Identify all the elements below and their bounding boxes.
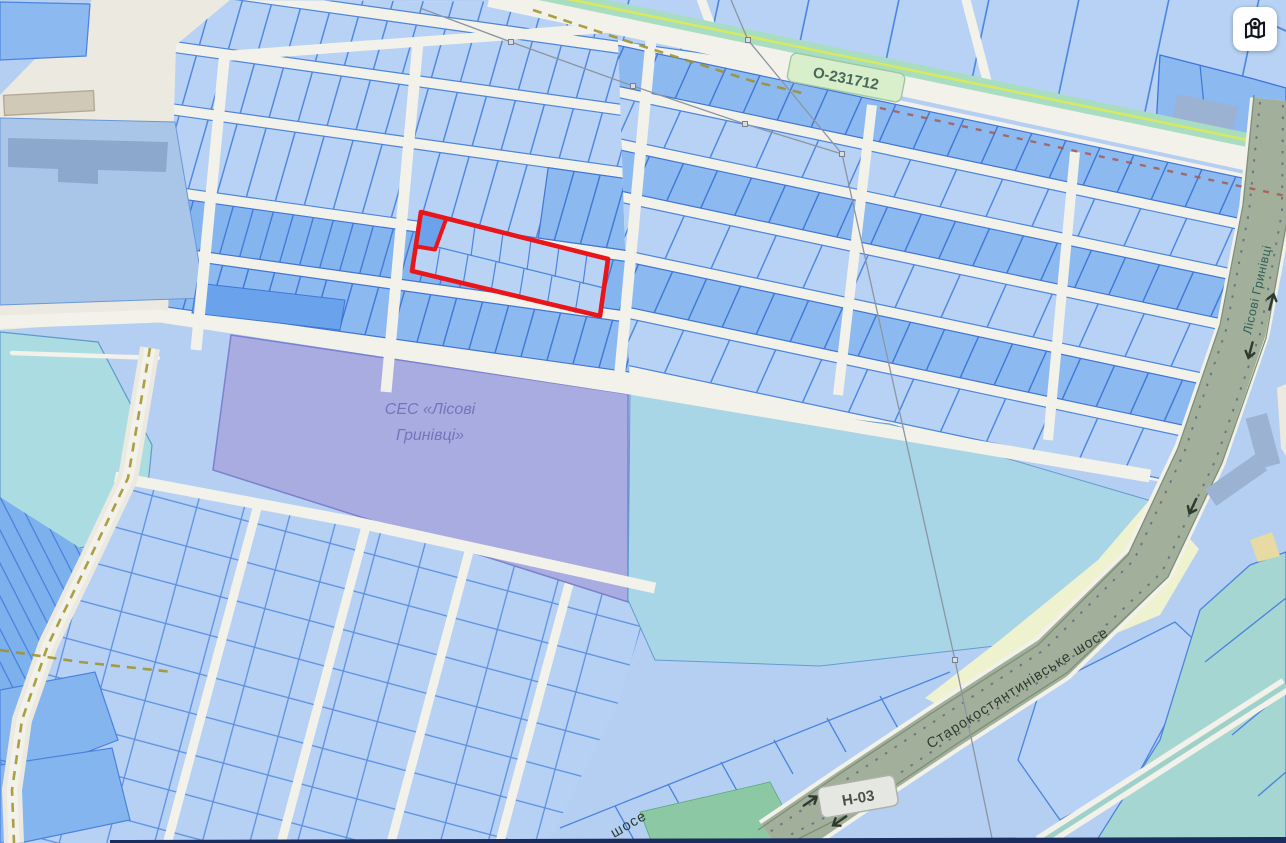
map-pin-icon: [1242, 16, 1268, 42]
cadastral-map[interactable]: О-231712 Н-03 Старокостянтинівське шосе …: [0, 0, 1286, 843]
solar-station-label-line1: СЕС «Лісові: [385, 401, 476, 418]
building-tan: [4, 91, 95, 116]
solar-station-label-line2: Гринівці»: [396, 427, 464, 444]
map-canvas[interactable]: О-231712 Н-03 Старокостянтинівське шосе …: [0, 0, 1286, 843]
parcel[interactable]: [0, 2, 90, 60]
map-locator-button[interactable]: [1233, 7, 1277, 51]
